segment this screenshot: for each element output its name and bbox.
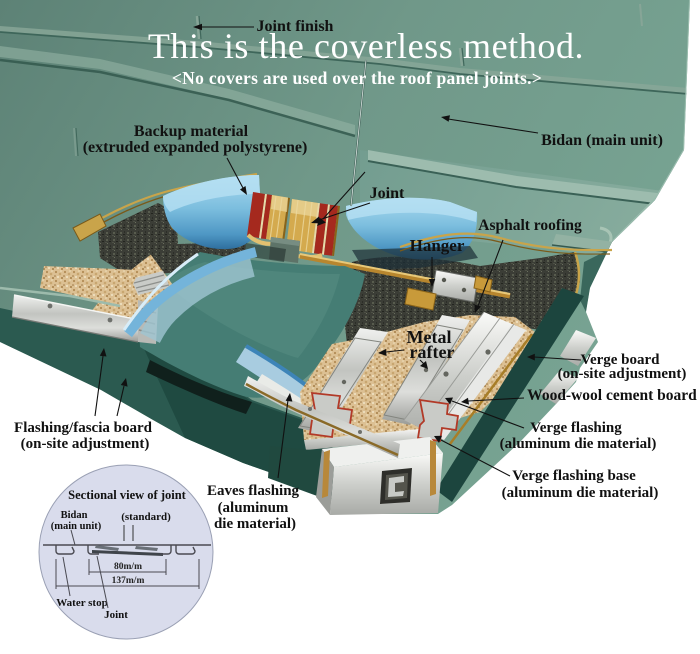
svg-text:(extruded expanded polystyrene: (extruded expanded polystyrene) — [83, 139, 308, 156]
svg-text:Bidan: Bidan — [61, 510, 88, 521]
svg-text:Verge flashing: Verge flashing — [530, 420, 622, 436]
svg-text:Sectional view of joint: Sectional view of joint — [68, 488, 187, 502]
svg-text:(aluminum: (aluminum — [218, 500, 289, 516]
svg-text:Flashing/fascia board: Flashing/fascia board — [14, 420, 153, 436]
svg-text:Water stop: Water stop — [56, 597, 107, 609]
svg-text:(aluminum die material): (aluminum die material) — [500, 436, 657, 452]
svg-text:Joint finish: Joint finish — [257, 18, 334, 35]
svg-text:(on-site adjustment): (on-site adjustment) — [558, 366, 687, 382]
svg-text:<No covers are used over the r: <No covers are used over the roof panel … — [172, 68, 542, 88]
svg-text:Backup material: Backup material — [134, 123, 249, 140]
svg-text:Joint: Joint — [370, 185, 405, 202]
svg-text:(on-site adjustment): (on-site adjustment) — [21, 436, 150, 452]
svg-text:(standard): (standard) — [121, 511, 171, 523]
svg-text:Joint: Joint — [104, 609, 128, 621]
svg-text:Verge flashing base: Verge flashing base — [512, 468, 636, 484]
svg-text:Bidan (main unit): Bidan (main unit) — [541, 132, 663, 149]
svg-text:Wood-wool cement board: Wood-wool cement board — [527, 387, 697, 404]
svg-text:(aluminum die material): (aluminum die material) — [502, 485, 659, 501]
svg-text:This is the coverless method.: This is the coverless method. — [148, 26, 584, 66]
svg-text:Eaves flashing: Eaves flashing — [207, 483, 300, 499]
svg-text:Asphalt roofing: Asphalt roofing — [478, 217, 582, 234]
svg-text:80m/m: 80m/m — [114, 562, 142, 572]
svg-text:Hanger: Hanger — [410, 236, 465, 255]
svg-text:rafter: rafter — [410, 342, 455, 362]
svg-text:(main unit): (main unit) — [51, 521, 102, 532]
svg-text:137m/m: 137m/m — [112, 576, 145, 586]
svg-text:die material): die material) — [214, 516, 296, 532]
